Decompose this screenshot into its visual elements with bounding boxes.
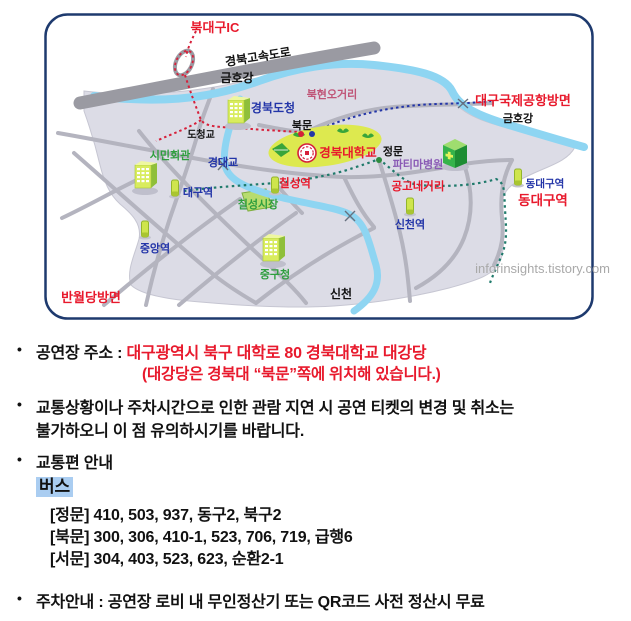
bullet-notice: • [17, 396, 22, 412]
map-label-junggu-office: 중구청 [260, 267, 290, 281]
bus-route-seomun: [서문] 304, 403, 523, 623, 순환2-1 [50, 545, 283, 569]
address-value: 대구광역시 북구 대학로 80 경북대학교 대강당 [126, 345, 426, 362]
bullet-transport: • [17, 451, 22, 467]
jeongmun-green-dot [376, 157, 382, 163]
map-label-bukhyeon: 북현오거리 [307, 87, 358, 101]
map-label-docheong: 경북도청 [251, 100, 295, 115]
map-label-dongdaegu-small: 동대구역 [526, 177, 565, 190]
simin-hall-building-icon [132, 161, 158, 195]
map-label-jeongmun: 정문 [383, 144, 403, 158]
map-label-bukdaegu-ic: 북대구IC [191, 20, 240, 35]
map-label-fatima: 파티마병원 [393, 157, 444, 171]
docheong-building-icon [225, 96, 251, 130]
bullet-address: • [17, 341, 22, 357]
map-label-daegu-station: 대구역 [183, 185, 213, 199]
notice-line1: 교통상황이나 주차시간으로 인한 관람 지연 시 공연 티켓의 변경 및 취소는 [36, 394, 514, 418]
map-label-jungang-station: 중앙역 [140, 241, 170, 255]
parking-line: 주차안내 : 공연장 로비 내 무인정산기 또는 QR코드 사전 정산시 무료 [36, 588, 485, 612]
knu-emblem [298, 144, 316, 162]
map-label-knu: 경북대학교 [319, 145, 377, 160]
map-label-docheonggyo: 도청교 [187, 128, 215, 141]
map-label-sincheon-river: 신천 [330, 286, 352, 301]
map-label-geumhogang-west: 금호강 [220, 71, 253, 85]
map-label-simin-hall: 시민회관 [150, 148, 190, 162]
map-label-gyeongdaegyo: 경대교 [208, 155, 238, 169]
bus-route-bukmun: [북문] 300, 306, 410-1, 523, 706, 719, 급행6 [50, 523, 353, 547]
page: { "palette": { "red": "#e8192c", "navy":… [0, 0, 631, 621]
address-note: (대강당은 경북대 “북문”쪽에 위치해 있습니다.) [142, 362, 441, 384]
bus-heading: 버스 [36, 472, 73, 497]
map-label-gonggo: 공고네거리 [392, 179, 445, 193]
bus-route-jeongmun: [정문] 410, 503, 937, 동구2, 북구2 [50, 501, 281, 525]
map-label-chilseong-station: 칠성역 [279, 176, 311, 190]
bus-label: 버스 [36, 477, 73, 497]
address-label: 공연장 주소 : [36, 345, 126, 362]
map-label-banwoldang: 반월당방면 [61, 290, 121, 305]
watermark: inforinsights.tistory.com [440, 261, 610, 276]
map-label-airport: 대구국제공항방면 [475, 93, 571, 108]
junggu-office-building-icon [260, 234, 286, 268]
map-label-bukmun: 북문 [292, 118, 312, 132]
map-label-sincheon-station: 신천역 [395, 217, 425, 231]
map-label-dongdaegu-big: 동대구역 [518, 192, 568, 208]
transport-title: 교통편 안내 [36, 449, 113, 473]
address-line: 공연장 주소 : 대구광역시 북구 대학로 80 경북대학교 대강당 [36, 339, 426, 363]
bullet-parking: • [17, 590, 22, 606]
notice-line2: 불가하오니 이 점 유의하시기를 바랍니다. [36, 417, 304, 441]
map-label-chilseong-market: 칠성시장 [238, 197, 278, 211]
map-label-geumhogang-east: 금호강 [503, 111, 533, 125]
